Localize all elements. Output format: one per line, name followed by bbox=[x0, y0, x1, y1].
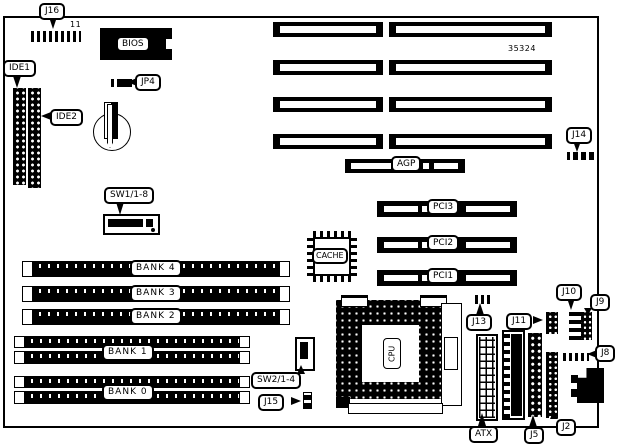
pointer-j5 bbox=[529, 415, 537, 427]
bank1-label-text: BANK 1 bbox=[108, 347, 148, 357]
callout-jp4: JP4 bbox=[135, 74, 161, 91]
callout-j2: J2 bbox=[556, 419, 576, 436]
cpu-label-text: CPU bbox=[388, 345, 397, 361]
callout-j16: J16 bbox=[39, 3, 65, 20]
isa-slot-stripe bbox=[280, 26, 376, 33]
pci3-label-text: PCI3 bbox=[433, 202, 453, 212]
callout-j5-text: J5 bbox=[530, 430, 538, 440]
callout-ide1: IDE1 bbox=[3, 60, 36, 77]
agp-slot-stripe bbox=[351, 163, 391, 169]
bank0-label: BANK 0 bbox=[102, 384, 154, 401]
isa-slot-stripe bbox=[396, 101, 545, 108]
j2-connector bbox=[546, 352, 558, 418]
pci-slot-stripe bbox=[384, 242, 418, 248]
isa-slot-1-left bbox=[273, 22, 383, 37]
pci3-label: PCI3 bbox=[427, 199, 459, 215]
isa-slot-stripe bbox=[396, 64, 545, 71]
callout-j14-text: J14 bbox=[572, 130, 586, 140]
pci-slot-stripe bbox=[466, 275, 510, 281]
j14-connector bbox=[565, 151, 597, 161]
atx-connector bbox=[476, 334, 498, 421]
j15-connector bbox=[303, 392, 312, 409]
sw1-dot bbox=[151, 228, 155, 232]
j11-connector bbox=[546, 312, 558, 334]
isa-slot-3-left bbox=[273, 97, 383, 112]
callout-j14: J14 bbox=[566, 127, 592, 144]
pci-slot-stripe bbox=[466, 206, 510, 212]
bank2-label-text: BANK 2 bbox=[136, 311, 176, 321]
keyboard-connector-tab bbox=[571, 389, 578, 397]
motherboard-diagram: J16 11 BIOS IDE1 IDE2 JP4 35324 J14 AGP … bbox=[0, 0, 621, 447]
pointer-ide1 bbox=[13, 76, 21, 88]
j16-header bbox=[28, 29, 84, 44]
atx-connector-grid bbox=[479, 337, 495, 418]
isa-slot-1-right bbox=[389, 22, 552, 37]
unlabeled-header-teeth bbox=[504, 334, 510, 418]
callout-j5: J5 bbox=[524, 427, 544, 444]
pointer-j15 bbox=[291, 397, 301, 405]
sw1-body bbox=[146, 219, 153, 227]
pci-slot-stripe bbox=[384, 206, 418, 212]
bios-label: BIOS bbox=[116, 36, 150, 52]
pointer-j2 bbox=[550, 410, 558, 419]
pci-slot-stripe bbox=[384, 275, 418, 281]
cache-pins-bottom bbox=[313, 276, 351, 282]
callout-j15: J15 bbox=[258, 394, 284, 411]
callout-sw1: SW1/1-8 bbox=[104, 187, 154, 204]
isa-slot-4-right bbox=[389, 134, 552, 149]
callout-j13-text: J13 bbox=[472, 317, 486, 327]
callout-ide2-text: IDE2 bbox=[56, 112, 77, 122]
pci2-label-text: PCI2 bbox=[433, 238, 453, 248]
callout-ide2: IDE2 bbox=[50, 109, 83, 126]
cache-pins-right bbox=[351, 237, 357, 276]
isa-slot-3-right bbox=[389, 97, 552, 112]
cache-label: CACHE bbox=[312, 248, 348, 264]
callout-j9-text: J9 bbox=[596, 297, 604, 307]
callout-j8-text: J8 bbox=[601, 348, 609, 358]
isa-slot-stripe bbox=[280, 64, 376, 71]
sw2-body bbox=[300, 342, 308, 359]
cpu-lever-bar bbox=[348, 403, 443, 414]
bios-chip-notch bbox=[166, 39, 173, 49]
battery-clip bbox=[107, 104, 113, 148]
cpu-label: CPU bbox=[383, 338, 401, 369]
pci1-label-text: PCI1 bbox=[433, 271, 453, 281]
callout-j11: J11 bbox=[506, 313, 532, 330]
callout-j13: J13 bbox=[466, 314, 492, 331]
bank2-label: BANK 2 bbox=[130, 308, 182, 325]
bank4-label: BANK 4 bbox=[130, 260, 182, 277]
pci-slot-stripe bbox=[466, 242, 510, 248]
isa-slot-stripe bbox=[280, 138, 376, 145]
board-part-number: 35324 bbox=[508, 45, 536, 53]
agp-label: AGP bbox=[391, 156, 421, 172]
bank0-label-text: BANK 0 bbox=[108, 387, 148, 397]
callout-sw2: SW2/1-4 bbox=[251, 372, 301, 389]
bank4-label-text: BANK 4 bbox=[136, 263, 176, 273]
cpu-lever-knob bbox=[444, 337, 458, 370]
cpu-socket-tab-left bbox=[341, 295, 368, 307]
isa-slot-2-left bbox=[273, 60, 383, 75]
cache-label-text: CACHE bbox=[316, 251, 344, 260]
callout-sw2-text: SW2/1-4 bbox=[257, 375, 295, 385]
callout-j16-text: J16 bbox=[45, 6, 59, 16]
isa-slot-4-left bbox=[273, 134, 383, 149]
isa-slot-stripe bbox=[396, 138, 545, 145]
isa-slot-2-right bbox=[389, 60, 552, 75]
agp-label-text: AGP bbox=[397, 159, 415, 169]
isa-slot-stripe bbox=[396, 26, 545, 33]
callout-atx: ATX bbox=[469, 426, 498, 443]
j5-connector bbox=[528, 333, 542, 417]
sw1-body bbox=[108, 219, 143, 227]
callout-sw1-text: SW1/1-8 bbox=[110, 190, 148, 200]
callout-j11-text: J11 bbox=[512, 316, 526, 326]
ide2-connector bbox=[28, 88, 41, 188]
callout-jp4-text: JP4 bbox=[141, 77, 155, 87]
bank1-label: BANK 1 bbox=[102, 344, 154, 361]
j9-connector bbox=[581, 312, 592, 340]
pci2-label: PCI2 bbox=[427, 235, 459, 251]
pointer-atx bbox=[478, 413, 486, 426]
keyboard-connector-tab bbox=[571, 375, 578, 383]
callout-atx-text: ATX bbox=[475, 429, 492, 439]
pin11-text: 11 bbox=[70, 21, 81, 29]
unlabeled-header bbox=[502, 330, 525, 420]
agp-slot-stripe bbox=[434, 163, 458, 169]
bank3-label-text: BANK 3 bbox=[136, 288, 176, 298]
callout-j9: J9 bbox=[590, 294, 610, 311]
bank3-label: BANK 3 bbox=[130, 285, 182, 302]
isa-slot-stripe bbox=[280, 101, 376, 108]
callout-j8: J8 bbox=[595, 345, 615, 362]
agp-slot-key bbox=[423, 163, 429, 169]
pci1-label: PCI1 bbox=[427, 268, 459, 284]
bios-label-text: BIOS bbox=[122, 39, 144, 49]
callout-j10-text: J10 bbox=[562, 287, 576, 297]
pointer-j11 bbox=[533, 316, 543, 324]
callout-j10: J10 bbox=[556, 284, 582, 301]
callout-ide1-text: IDE1 bbox=[9, 63, 30, 73]
callout-j2-text: J2 bbox=[562, 422, 570, 432]
ide1-connector bbox=[13, 88, 26, 185]
callout-j15-text: J15 bbox=[264, 397, 278, 407]
unlabeled-header-bar bbox=[511, 334, 522, 416]
